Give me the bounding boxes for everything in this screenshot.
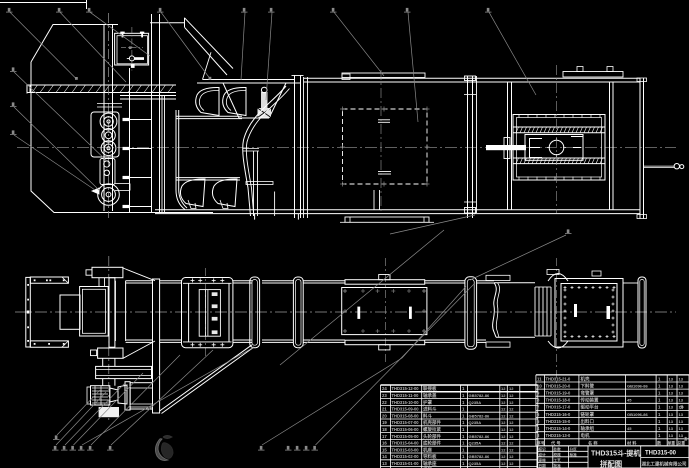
svg-text:12: 12 [509,400,514,405]
svg-text:日期: 日期 [539,463,547,468]
svg-text:13: 13 [679,433,684,438]
svg-text:12: 12 [501,454,506,459]
svg-text:12: 12 [501,434,506,439]
svg-text:THD315-09-00: THD315-09-00 [392,407,420,412]
svg-text:机壳: 机壳 [581,375,590,382]
svg-text:12: 12 [501,407,506,412]
svg-text:12: 12 [501,413,506,418]
svg-text:12: 12 [509,447,514,452]
svg-text:13: 13 [679,426,684,431]
svg-text:GB5782-86: GB5782-86 [469,413,490,418]
svg-text:12: 12 [509,427,514,432]
svg-text:THD315-21-0: THD315-21-0 [546,376,572,381]
svg-text:12: 12 [509,441,514,446]
svg-text:13: 13 [382,461,387,466]
svg-text:电机: 电机 [581,432,590,439]
svg-text:23: 23 [382,393,387,398]
svg-text:13: 13 [679,391,684,396]
svg-text:GB5782-86: GB5782-86 [469,434,490,439]
svg-text:工艺: 工艺 [554,457,562,462]
svg-text:进料斗: 进料斗 [423,406,437,413]
svg-text:13: 13 [669,391,674,396]
svg-text:13: 13 [669,383,674,388]
svg-text:THD315-10-00: THD315-10-00 [392,400,420,405]
svg-text:13: 13 [679,419,684,424]
svg-text:机壳部件: 机壳部件 [423,419,441,426]
svg-text:THD315-02-00: THD315-02-00 [392,454,420,459]
svg-text:THD315斗-提机: THD315斗-提机 [591,449,640,458]
svg-text:批准: 批准 [554,463,562,468]
svg-text:12: 12 [501,400,506,405]
svg-text:24: 24 [382,386,387,391]
svg-text:THD315-13-0: THD315-13-0 [546,433,572,438]
svg-text:机座: 机座 [423,446,432,453]
svg-text:13: 13 [679,412,684,417]
svg-text:13: 13 [669,412,674,417]
svg-text:13: 13 [669,433,674,438]
svg-text:22: 22 [382,400,387,405]
svg-text:处数: 处数 [553,446,562,451]
svg-text:13: 13 [669,405,674,410]
svg-text:THD315-18-0: THD315-18-0 [546,398,572,403]
svg-text:12: 12 [509,386,514,391]
svg-text:13: 13 [669,419,674,424]
svg-text:18: 18 [382,427,387,432]
svg-text:12: 12 [501,420,506,425]
svg-text:45: 45 [627,426,632,431]
svg-text:12: 12 [509,420,514,425]
svg-text:12: 12 [509,393,514,398]
svg-text:10: 10 [537,383,542,388]
svg-text:下料管: 下料管 [581,382,595,389]
svg-text:16: 16 [382,441,387,446]
svg-text:护罩: 护罩 [423,399,432,406]
svg-text:12: 12 [501,393,506,398]
svg-text:拼配图: 拼配图 [600,459,622,468]
svg-text:湖北工建机械有限公司: 湖北工建机械有限公司 [642,460,687,467]
svg-text:底轮部件: 底轮部件 [423,440,441,447]
svg-text:45: 45 [627,398,632,403]
svg-text:标记: 标记 [538,446,547,451]
svg-text:驱动平台: 驱动平台 [581,404,599,411]
svg-text:12: 12 [509,413,514,418]
svg-text:13: 13 [679,376,684,381]
svg-text:13: 13 [669,398,674,403]
svg-text:12: 12 [501,386,506,391]
svg-text:THD315-03-00: THD315-03-00 [392,447,420,452]
svg-text:20: 20 [382,413,387,418]
svg-text:12: 12 [509,434,514,439]
svg-text:轴承盖: 轴承盖 [423,392,437,399]
svg-text:13: 13 [669,426,674,431]
svg-text:THD315-07-00: THD315-07-00 [392,420,420,425]
svg-text:校核: 校核 [554,452,562,457]
svg-text:料斗: 料斗 [423,412,432,419]
svg-text:14: 14 [382,454,387,459]
svg-text:THD315-17-0: THD315-17-0 [546,405,572,410]
svg-text:GB5782-86: GB5782-86 [469,393,490,398]
svg-text:传动装置: 传动装置 [580,397,599,404]
svg-text:备: 备 [683,436,688,441]
svg-text:设计: 设计 [539,452,547,457]
svg-text:THD315-12-00: THD315-12-00 [392,386,420,391]
svg-text:21: 21 [382,407,387,412]
svg-text:THD315-14-0: THD315-14-0 [546,426,572,431]
svg-text:GB5782-86: GB5782-86 [469,454,490,459]
svg-text:19: 19 [382,420,387,425]
svg-text:12: 12 [509,461,514,466]
svg-text:11: 11 [537,376,542,381]
svg-text:17: 17 [382,434,387,439]
svg-text:导料板: 导料板 [423,453,437,460]
svg-text:12: 12 [501,441,506,446]
svg-text:Q235A: Q235A [469,400,482,405]
svg-text:THD315-06-00: THD315-06-00 [392,427,420,432]
svg-text:13: 13 [679,383,684,388]
svg-text:轴承组: 轴承组 [581,425,595,432]
svg-text:GB1096-86: GB1096-86 [627,412,648,417]
svg-text:螺旋拉紧: 螺旋拉紧 [423,426,441,433]
svg-text:12: 12 [509,407,514,412]
svg-text:12: 12 [501,447,506,452]
svg-text:THD315-11-00: THD315-11-00 [392,393,420,398]
svg-text:13: 13 [679,398,684,403]
svg-text:THD315-05-00: THD315-05-00 [392,434,420,439]
svg-text:15: 15 [382,447,387,452]
svg-text:THD315-15-0: THD315-15-0 [546,419,572,424]
svg-text:标准: 标准 [569,452,578,457]
svg-text:Q235A: Q235A [469,420,482,425]
svg-text:链轮罩: 链轮罩 [580,411,595,418]
svg-text:THD315-08-00: THD315-08-00 [392,413,420,418]
svg-text:头轮部件: 头轮部件 [423,433,441,440]
svg-text:12: 12 [501,427,506,432]
svg-text:总重: 总重 [678,441,686,446]
svg-text:出料口: 出料口 [581,418,595,425]
svg-text:联接板: 联接板 [423,385,437,392]
svg-text:THD315-00: THD315-00 [645,451,677,457]
svg-text:12: 12 [501,461,506,466]
svg-text:Q235A: Q235A [469,441,482,446]
svg-text:THD315-04-00: THD315-04-00 [392,441,420,446]
svg-text:外: 外 [679,404,684,410]
svg-text:THD315-20-0: THD315-20-0 [546,383,572,388]
svg-text:12: 12 [509,454,514,459]
svg-text:分区: 分区 [570,446,578,451]
svg-text:GB1096-86: GB1096-86 [627,383,648,388]
svg-text:THD315-19-0: THD315-19-0 [546,391,572,396]
svg-text:单重: 单重 [668,441,676,446]
svg-text:弯管罩: 弯管罩 [581,390,595,397]
svg-text:13: 13 [669,376,674,381]
svg-text:THD315-16-0: THD315-16-0 [546,412,572,417]
svg-text:审核: 审核 [539,457,547,462]
svg-text:Q235A: Q235A [469,461,482,466]
svg-text:THD315-01-00: THD315-01-00 [392,461,420,466]
